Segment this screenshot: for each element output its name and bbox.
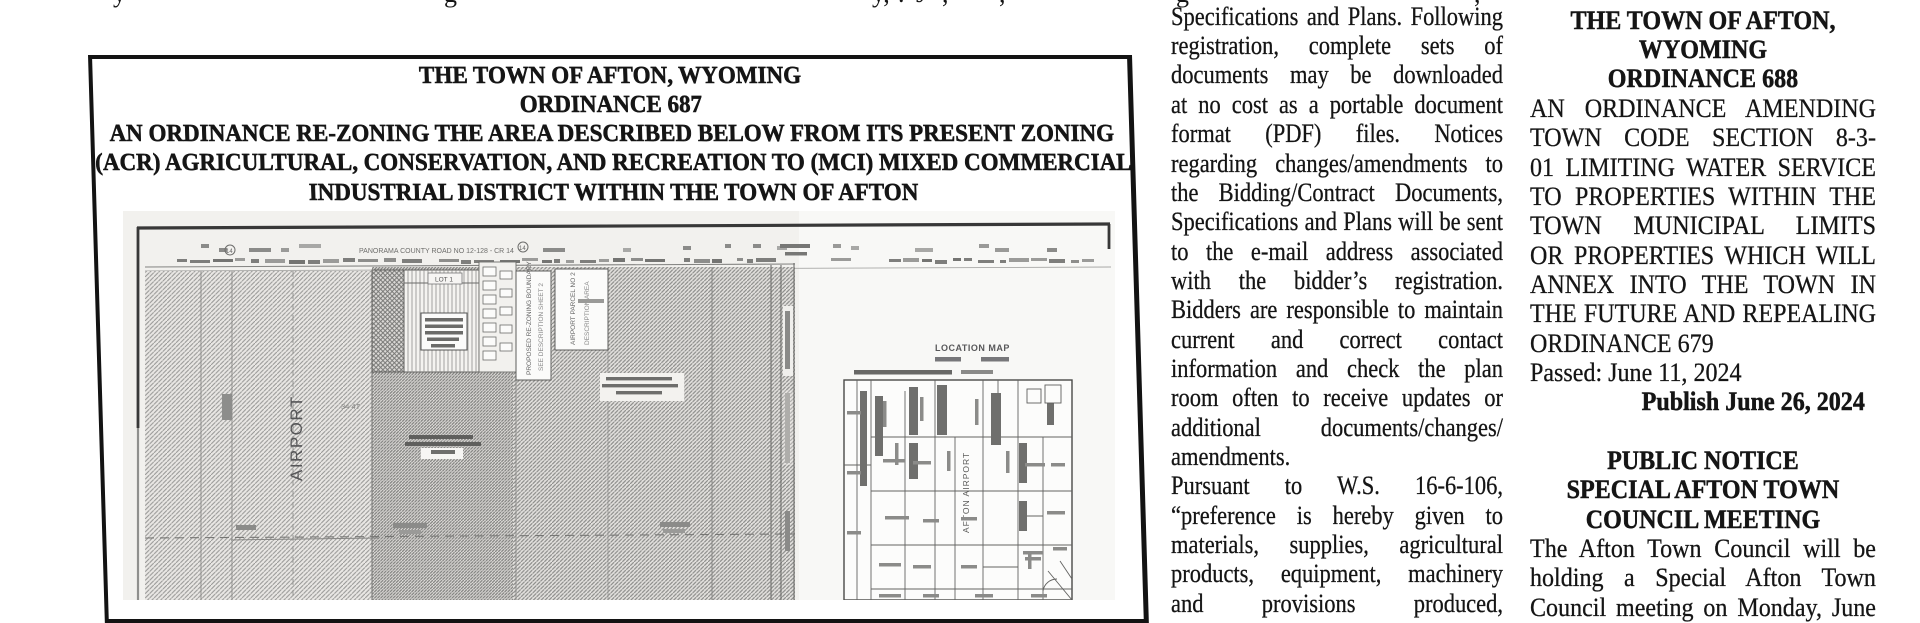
svg-text:PANORAMA COUNTY ROAD NO 12-128: PANORAMA COUNTY ROAD NO 12-128 - CR 14 bbox=[359, 248, 514, 255]
svg-text:34 4T: 34 4T bbox=[341, 402, 361, 411]
svg-text:SEE DESCRIPTION SHEET 2: SEE DESCRIPTION SHEET 2 bbox=[538, 283, 545, 371]
svg-text:14: 14 bbox=[519, 246, 526, 252]
svg-text:PROPOSED RE-ZONING BOUNDARY: PROPOSED RE-ZONING BOUNDARY bbox=[526, 261, 533, 375]
svg-text:14: 14 bbox=[226, 249, 233, 255]
svg-text:AIRPORT: AIRPORT bbox=[287, 395, 306, 481]
svg-text:AIRPORT PARCEL NO 2: AIRPORT PARCEL NO 2 bbox=[570, 272, 577, 345]
svg-text:LOT 1: LOT 1 bbox=[435, 277, 453, 284]
svg-text:DESCRIPTION AREA: DESCRIPTION AREA bbox=[584, 281, 591, 345]
svg-text:LOCATION MAP: LOCATION MAP bbox=[935, 343, 1010, 353]
svg-text:AFTON AIRPORT: AFTON AIRPORT bbox=[961, 452, 971, 533]
